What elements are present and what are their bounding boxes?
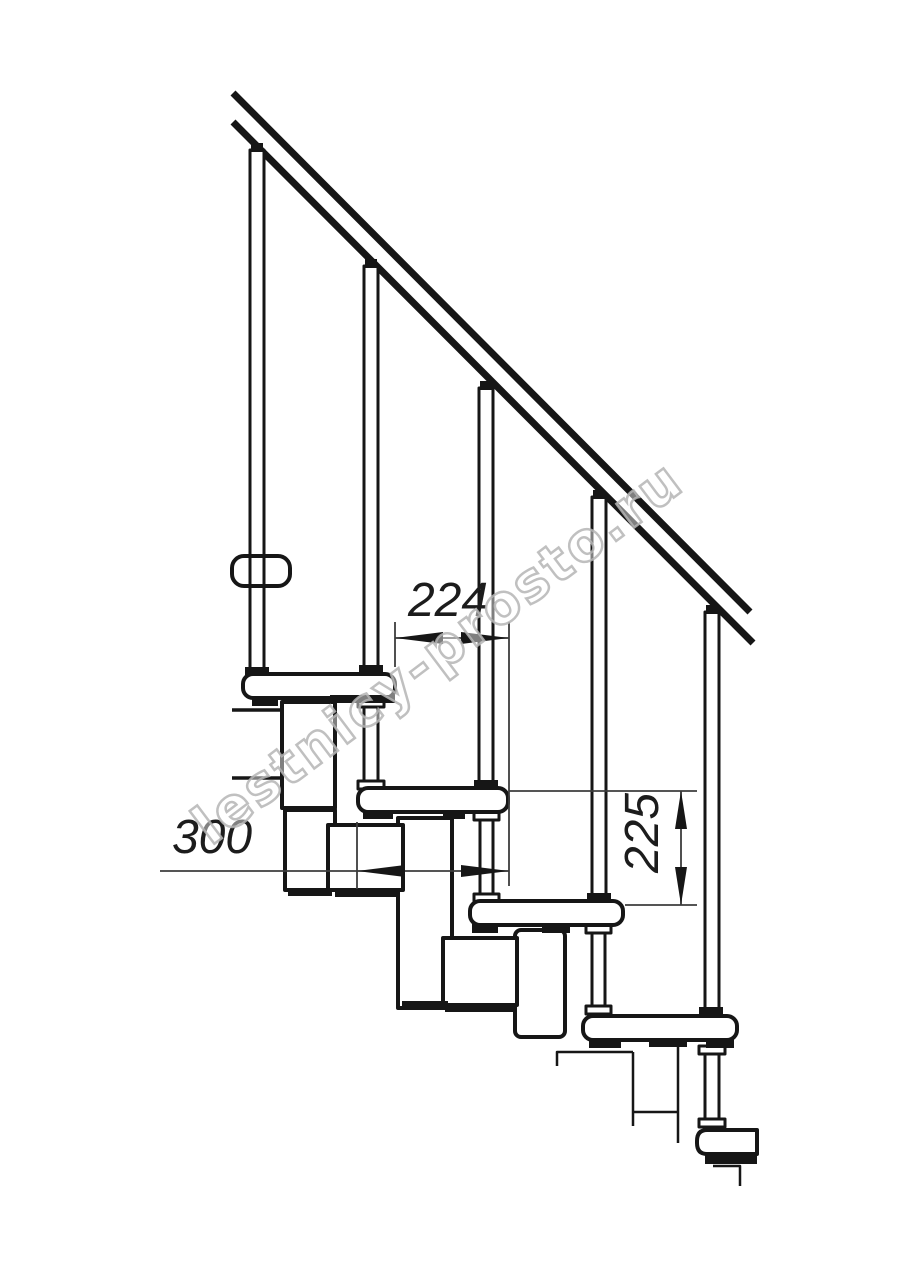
drawing-page: 224300225lestnicy-prosto.ru: [0, 0, 914, 1280]
module-square-3: [443, 938, 517, 1005]
baluster-5-rail-cap: [706, 605, 718, 614]
module-column-mid-base-bar: [402, 1001, 448, 1009]
tread-3-mid-clamp: [542, 924, 570, 933]
dim-225-arrow-up: [675, 791, 687, 829]
module-square-3-base-bar: [445, 1004, 513, 1012]
tread-4: [583, 1016, 737, 1040]
dim-label-225: 225: [616, 793, 669, 874]
support-tube-3: [480, 813, 493, 901]
tread-5-partial: [697, 1130, 757, 1154]
support-tube-4: [592, 926, 605, 1014]
tread-4-mid-clamp: [649, 1039, 687, 1047]
tread-3: [470, 901, 623, 925]
module-square-2-base-bar: [335, 889, 398, 897]
lower-module-cut-line: [557, 1052, 633, 1066]
baluster-3-rail-cap: [480, 381, 492, 390]
tread-5-clamp: [705, 1153, 757, 1164]
support-tube-4-bottom-flare: [586, 1006, 611, 1014]
baluster-1-rail-cap: [251, 143, 263, 152]
baluster-2: [364, 266, 378, 668]
tread-2: [358, 788, 508, 812]
staircase-drawing: 224300225lestnicy-prosto.ru: [0, 0, 914, 1280]
module-column-low: [515, 930, 565, 1037]
baluster-2-rail-cap: [365, 259, 377, 268]
tread-1-left-clamp: [252, 697, 278, 706]
module-square-2: [328, 825, 403, 890]
baluster-1: [250, 150, 264, 676]
module-box-2-base-bar: [288, 888, 332, 896]
support-tube-5: [705, 1047, 719, 1127]
tread-2-mid-clamp: [443, 811, 465, 819]
tread-4-right-clamp: [706, 1039, 734, 1048]
tread-4-left-clamp: [589, 1039, 621, 1048]
last-step-cut-line: [713, 1166, 740, 1186]
support-tube-5-bottom-flare: [699, 1119, 725, 1127]
dim-225-arrow-down: [675, 867, 687, 905]
baluster-5: [705, 612, 719, 1010]
tread-2-left-clamp: [363, 811, 393, 819]
tread-3-left-clamp: [472, 924, 498, 933]
